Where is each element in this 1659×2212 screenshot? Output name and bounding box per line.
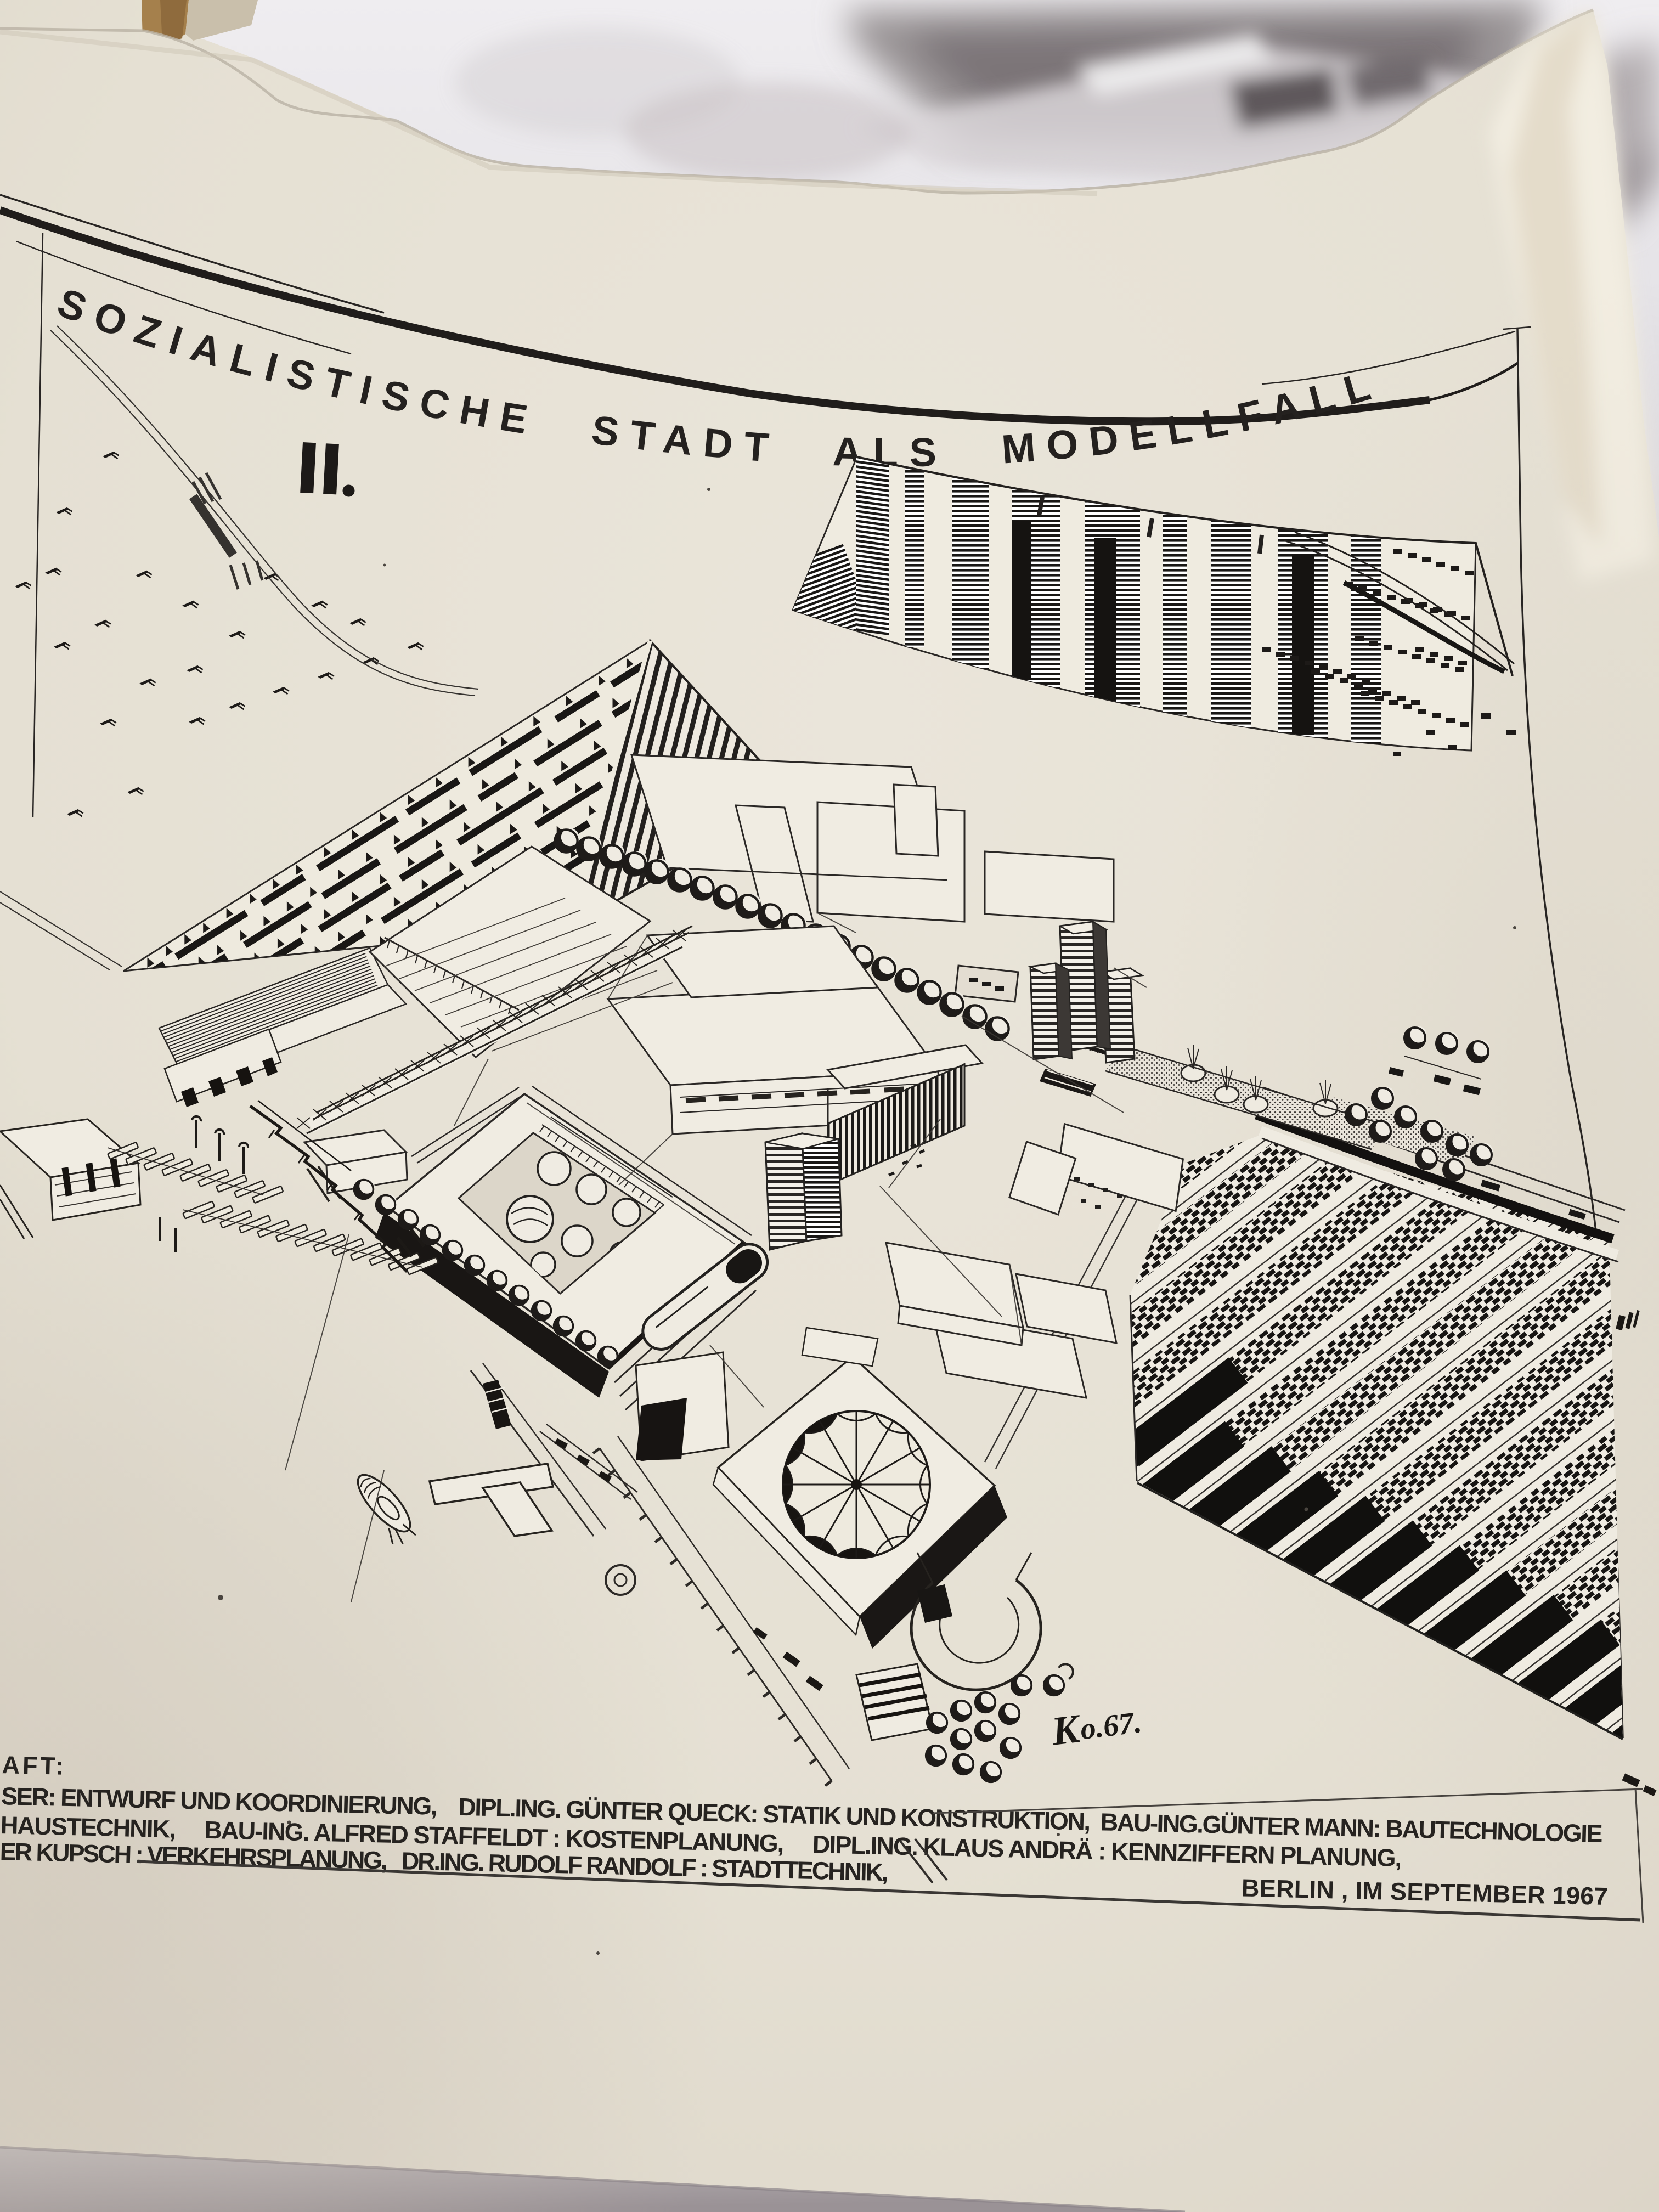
svg-text:AFT:: AFT: — [2, 1751, 67, 1780]
